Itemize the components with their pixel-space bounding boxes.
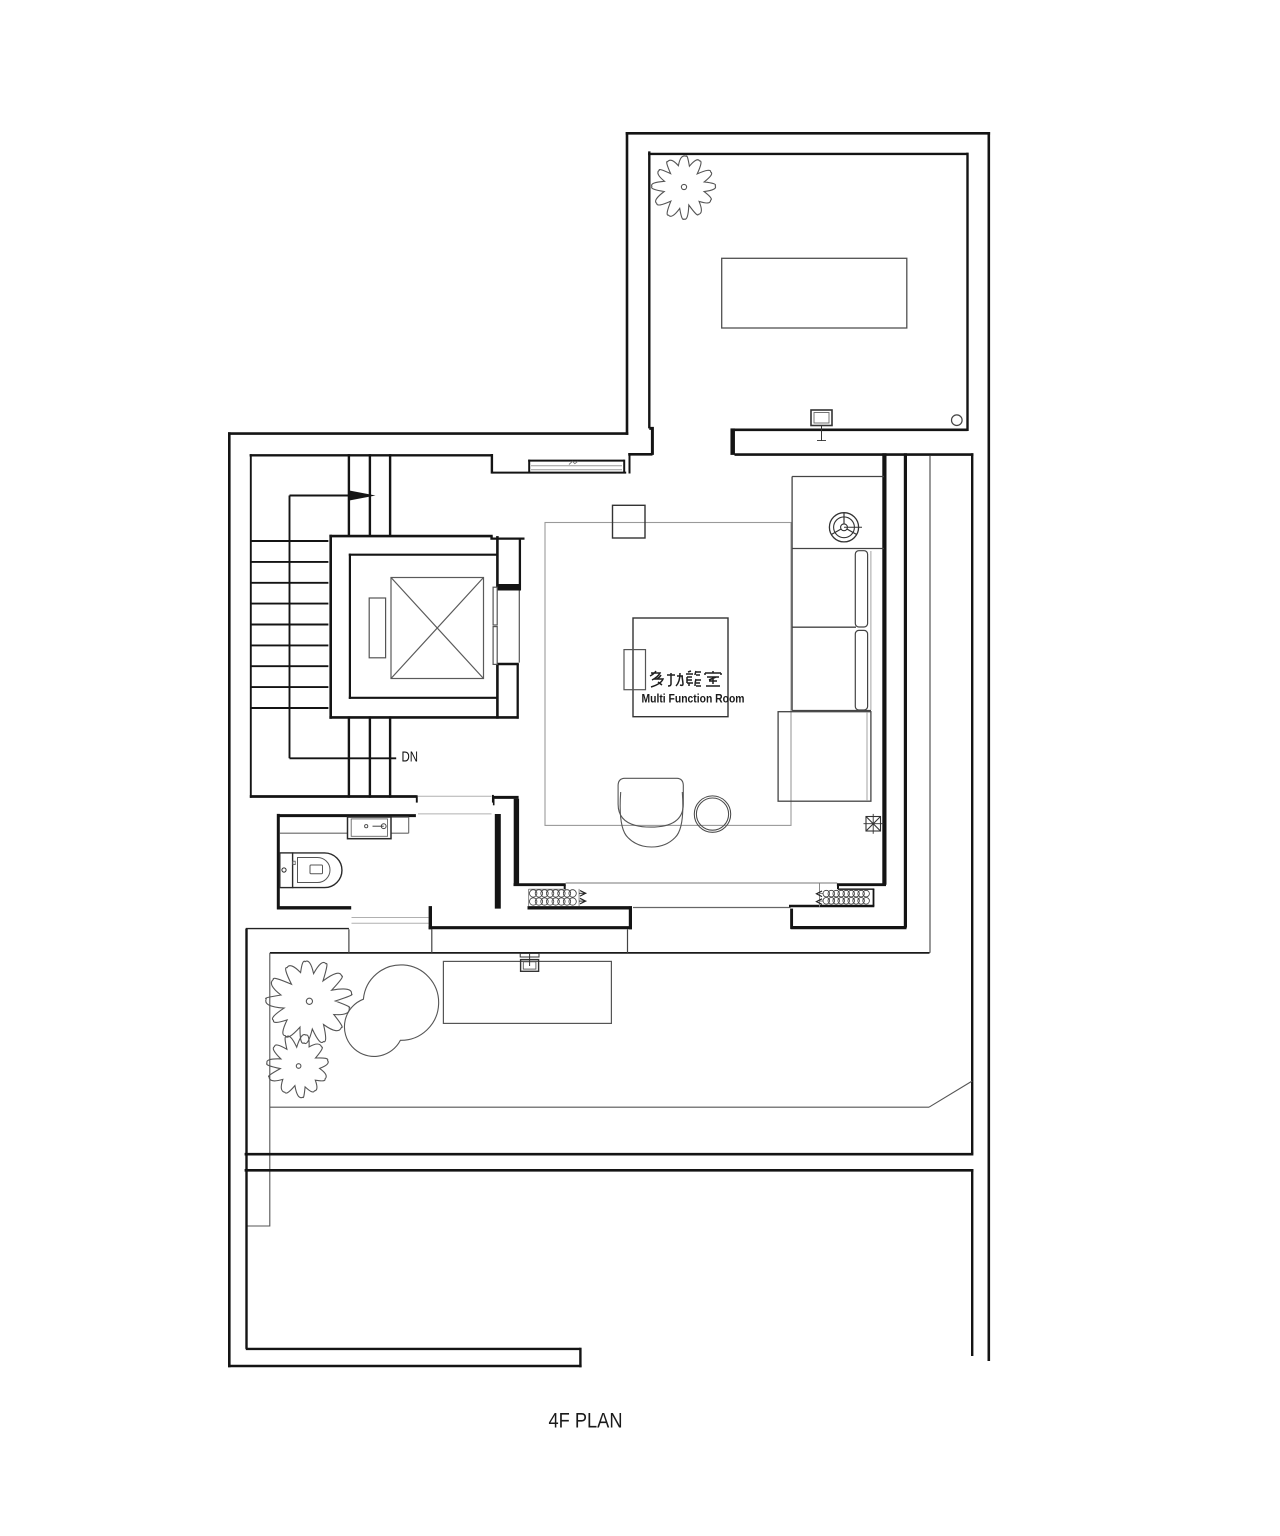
svg-text:Multi Function Room: Multi Function Room	[642, 692, 745, 706]
svg-text:DN: DN	[402, 750, 419, 766]
svg-text:4F PLAN: 4F PLAN	[549, 1410, 623, 1433]
